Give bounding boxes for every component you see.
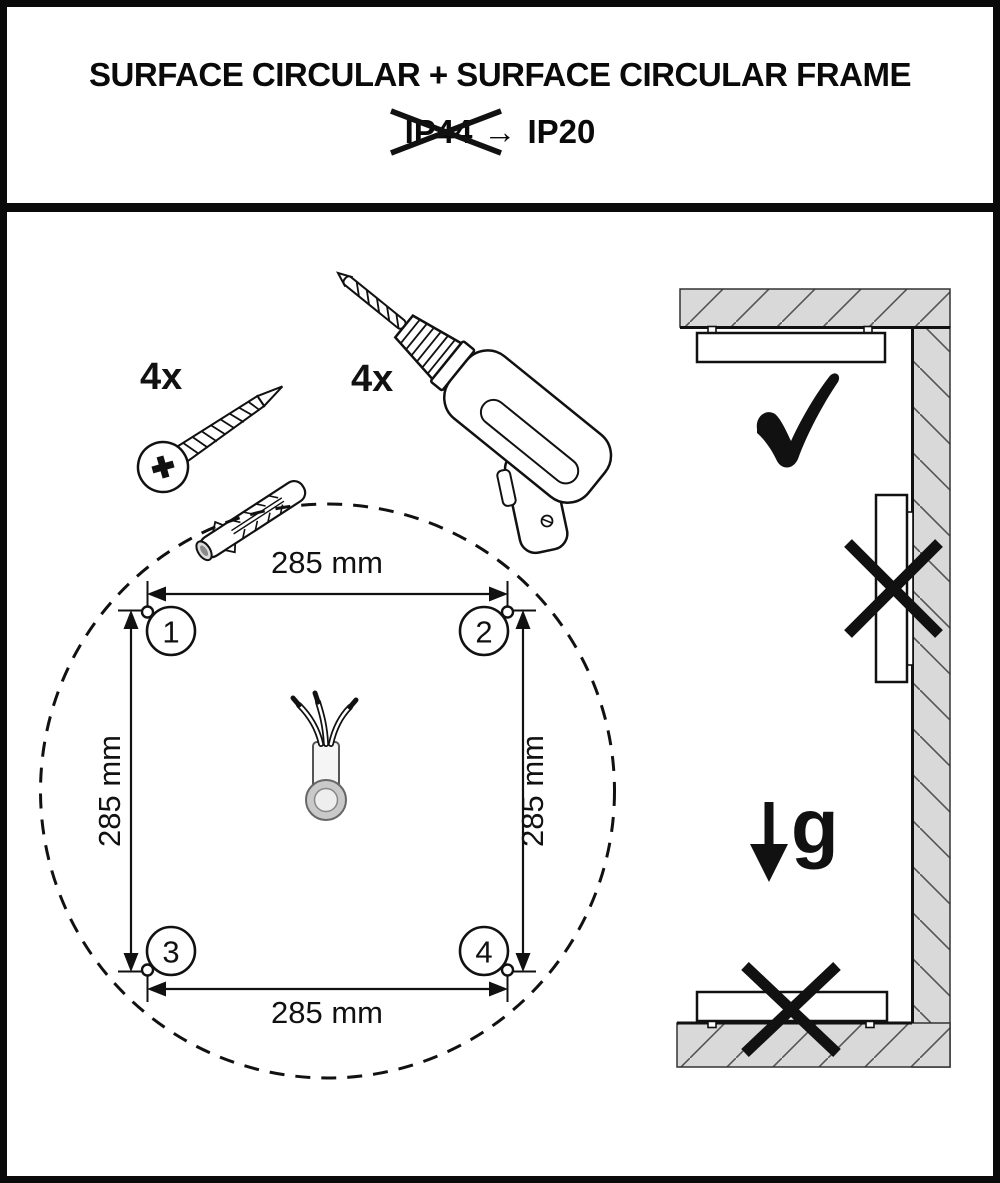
mounting-orientation-panel: g bbox=[677, 289, 950, 1067]
hole-4-badge: 4 bbox=[460, 927, 508, 975]
dimension-bottom-label: 285 mm bbox=[271, 995, 383, 1030]
ceiling-mount-correct bbox=[697, 327, 885, 468]
mounting-template: 285 mm 285 mm 285 mm bbox=[41, 504, 615, 1078]
hole-1-number: 1 bbox=[162, 615, 179, 650]
hole-2-number: 2 bbox=[475, 615, 492, 650]
dimension-bottom: 285 mm bbox=[147, 976, 508, 1030]
gravity-label: g bbox=[791, 782, 839, 870]
checkmark-icon bbox=[757, 373, 839, 467]
cable-wires bbox=[293, 693, 356, 744]
hole-3-number: 3 bbox=[162, 935, 179, 970]
screw-qty-label: 4x bbox=[140, 356, 182, 398]
hardware-parts: 4x bbox=[128, 356, 313, 569]
gravity-indicator: g bbox=[750, 782, 839, 882]
power-cable-icon bbox=[293, 693, 356, 820]
wall-surface bbox=[912, 327, 950, 1067]
ceiling-surface bbox=[680, 289, 950, 327]
hole-4-number: 4 bbox=[475, 935, 492, 970]
drill-qty-label: 4x bbox=[351, 358, 393, 400]
ceiling-luminaire bbox=[697, 333, 885, 362]
dimension-left: 285 mm bbox=[92, 610, 144, 972]
dimension-left-label: 285 mm bbox=[92, 735, 127, 847]
hole-3-badge: 3 bbox=[147, 927, 195, 975]
hole-2-badge: 2 bbox=[460, 607, 508, 655]
hole-1-badge: 1 bbox=[147, 607, 195, 655]
dimension-right: 285 mm bbox=[510, 610, 550, 972]
dimension-right-label: 285 mm bbox=[515, 735, 550, 847]
drill-tool: 4x bbox=[313, 242, 622, 556]
installation-diagram: 4x 4x bbox=[0, 0, 1000, 1183]
installation-instruction-sheet: SURFACE CIRCULAR + SURFACE CIRCULAR FRAM… bbox=[0, 0, 1000, 1183]
dimension-top-label: 285 mm bbox=[271, 545, 383, 580]
